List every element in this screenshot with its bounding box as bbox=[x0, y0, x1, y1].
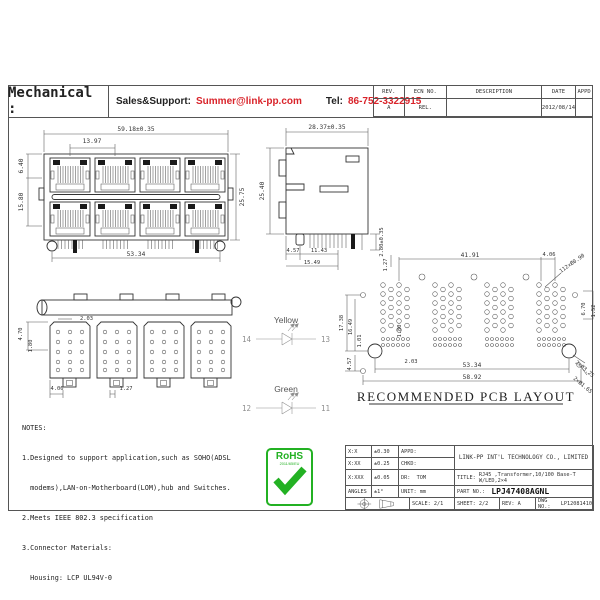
dim-pcb-left-mid: 16.49 bbox=[348, 319, 354, 335]
title-label: TITLE: bbox=[457, 475, 476, 481]
ecn-col-header: ECN NO. bbox=[405, 85, 447, 99]
dr-label: DR: bbox=[401, 475, 410, 481]
rev-label: REV: bbox=[502, 501, 515, 507]
rev-value: A bbox=[374, 99, 405, 117]
note-line: 3.Connector Materials: bbox=[22, 543, 263, 553]
dim-total-depth: 15.49 bbox=[304, 260, 320, 266]
dim-pcb-top-left: 1.27 bbox=[383, 259, 389, 272]
sales-support-label: Sales&Support: bbox=[116, 96, 191, 107]
title-value: RJ45 ,Transformer,10/100 Base-TW/LED,2×4 bbox=[479, 472, 576, 484]
projection-symbol-icon bbox=[350, 498, 406, 510]
tol-label: ANGLES bbox=[346, 486, 372, 498]
scale-label: SCALE: bbox=[412, 501, 431, 507]
part-no-label: PART NO.: bbox=[457, 489, 485, 495]
projection-symbol-cell bbox=[346, 498, 410, 510]
dim-pin-span: 11.43 bbox=[311, 248, 327, 254]
chkd-cell: CHKD: bbox=[399, 458, 455, 470]
pcb-hole-callout: 112×Ø0.90 bbox=[558, 252, 586, 274]
part-no-value: LPJ47408AGNL bbox=[491, 487, 549, 496]
unit-label: UNIT: bbox=[401, 489, 417, 495]
dim-top-offset: 6.40 bbox=[18, 158, 25, 173]
dim-pcb-span-inner: 53.34 bbox=[463, 362, 482, 369]
appd-cell: APPD: bbox=[399, 446, 455, 458]
notes-title: NOTES: bbox=[22, 423, 263, 433]
dim-pcb-top-span: 41.91 bbox=[461, 252, 480, 259]
dim-depth: 28.37±0.35 bbox=[308, 124, 346, 131]
side-view-drawing: 28.37±0.35 25.40 2.80±0.35 4.57 11.43 15… bbox=[248, 118, 388, 270]
unit-cell: UNIT: mm bbox=[399, 486, 455, 498]
rev-col-header: REV. bbox=[374, 85, 405, 99]
dr-cell: DR: TOM bbox=[399, 470, 455, 486]
dim-pcb-top-right: 4.06 bbox=[543, 252, 556, 258]
sheet-label: SHEET: bbox=[457, 501, 476, 507]
front-view-body bbox=[39, 154, 233, 253]
company-name: LINK-PP INT'L TECHNOLOGY CO., LIMITED bbox=[455, 446, 593, 470]
scale-cell: SCALE: 2/1 bbox=[410, 498, 455, 510]
sheet-value: 2/2 bbox=[479, 501, 488, 507]
chkd-label: CHKD: bbox=[401, 461, 417, 467]
rev-cell: REV: A bbox=[500, 498, 536, 510]
pcb-dimensions: 1.27 41.91 4.06 112×Ø0.90 17.38 16.49 1.… bbox=[339, 252, 597, 395]
side-view-dimensions: 28.37±0.35 25.40 2.80±0.35 4.57 11.43 15… bbox=[259, 124, 385, 270]
note-line: Housing: LCP UL94V-0 bbox=[22, 573, 263, 583]
rev-value: A bbox=[518, 501, 521, 507]
led-yellow-pin-left: 14 bbox=[242, 335, 252, 344]
description-value bbox=[447, 99, 542, 117]
dim-bottom-bottom-mid: 1.27 bbox=[120, 386, 133, 392]
note-line: modems),LAN-on-Motherboard(LOM),hub and … bbox=[22, 483, 263, 493]
tol-value: ±0.05 bbox=[372, 470, 399, 486]
bottom-view-body bbox=[37, 294, 241, 387]
led-symbol-yellow: Yellow 14 13 bbox=[240, 313, 332, 355]
title-cell: TITLE: RJ45 ,Transformer,10/100 Base-TW/… bbox=[455, 470, 593, 486]
dwg-label: DWG NO.: bbox=[538, 498, 558, 510]
note-line: 2.Meets IEEE 802.3 specification bbox=[22, 513, 263, 523]
dim-pcb-right-inner: 1.52 bbox=[591, 305, 597, 318]
sheet-cell: SHEET: 2/2 bbox=[455, 498, 500, 510]
support-email-link[interactable]: Summer@link-pp.com bbox=[196, 96, 302, 107]
led-yellow-label: Yellow bbox=[274, 315, 299, 325]
dim-side-height: 25.40 bbox=[259, 181, 266, 200]
front-view-drawing: 59.18±0.35 13.97 6.40 15.80 25.75 53.34 bbox=[14, 118, 246, 268]
rohs-badge: RoHS 2011/65/EU bbox=[266, 448, 313, 506]
revision-table: REV. ECN NO. DESCRIPTION DATE APPD A REL… bbox=[373, 85, 593, 117]
title-block: X:X ±0.30 X:XX ±0.25 X:XXX ±0.05 ANGLES … bbox=[345, 445, 594, 511]
note-line: 1.Designed to support application,such a… bbox=[22, 453, 263, 463]
tol-value: ±0.25 bbox=[372, 458, 399, 470]
dim-pcb-col-bottom: 2.03 bbox=[405, 359, 418, 365]
pcb-holes bbox=[361, 274, 594, 374]
mechanical-title: Mechanical : bbox=[8, 85, 109, 117]
appd-value bbox=[576, 99, 593, 117]
scale-value: 2/1 bbox=[434, 501, 443, 507]
rohs-title: RoHS bbox=[276, 451, 303, 462]
description-col-header: DESCRIPTION bbox=[447, 85, 542, 99]
dim-pcb-bottom-left: 4.57 bbox=[347, 358, 353, 371]
dim-row-offset: 15.80 bbox=[18, 192, 25, 211]
drawing-sheet: Mechanical : Sales&Support: Summer@link-… bbox=[0, 0, 600, 600]
led-yellow-pin-right: 13 bbox=[321, 335, 330, 344]
appd-col-header: APPD bbox=[576, 85, 593, 99]
dim-bottom-bottom-left: 4.06 bbox=[51, 386, 64, 392]
revision-header-row: REV. ECN NO. DESCRIPTION DATE APPD bbox=[374, 85, 593, 99]
dim-front-height: 25.75 bbox=[239, 187, 246, 206]
dim-pcb-right-outer: 6.70 bbox=[581, 303, 587, 316]
dim-bottom-left-outer: 4.70 bbox=[18, 328, 24, 341]
dim-pcb-span-outer: 58.92 bbox=[463, 374, 482, 381]
tol-value: ±1° bbox=[372, 486, 399, 498]
dr-value: TOM bbox=[417, 475, 426, 481]
rohs-checkmark-icon bbox=[273, 466, 307, 494]
dim-pcb-col-inner: 1.80 bbox=[397, 325, 403, 338]
dim-bottom-top: 2.03 bbox=[80, 316, 93, 322]
date-value: 2012/08/14 bbox=[542, 99, 577, 117]
tol-label: X:XX bbox=[346, 458, 372, 470]
unit-value: mm bbox=[420, 489, 426, 495]
tol-label: X:X bbox=[346, 446, 372, 458]
dim-pcb-left-outer: 17.38 bbox=[339, 315, 345, 331]
pcb-layout-drawing: 1.27 41.91 4.06 112×Ø0.90 17.38 16.49 1.… bbox=[333, 251, 599, 409]
part-no-cell: PART NO.: LPJ47408AGNL bbox=[455, 486, 593, 498]
led-green-pin-right: 11 bbox=[321, 404, 330, 413]
notes-block: NOTES: 1.Designed to support application… bbox=[22, 403, 263, 600]
pcb-layout-caption: RECOMMENDED PCB LAYOUT bbox=[357, 389, 575, 404]
appd-label: APPD: bbox=[401, 449, 417, 455]
ecn-value: REL. bbox=[405, 99, 447, 117]
tel-label: Tel: bbox=[326, 96, 343, 107]
side-view-body bbox=[279, 148, 368, 250]
dwg-cell: DWG NO.: LP12081410 bbox=[536, 498, 593, 510]
bottom-view-drawing: 2.03 4.70 1.80 4.06 1.27 bbox=[14, 288, 254, 408]
date-col-header: DATE bbox=[542, 85, 577, 99]
front-view-dimensions: 59.18±0.35 13.97 6.40 15.80 25.75 53.34 bbox=[18, 126, 246, 262]
dim-overall-width: 59.18±0.35 bbox=[117, 126, 155, 133]
dim-front-bottom-width: 53.34 bbox=[127, 251, 146, 258]
dim-port-pitch: 13.97 bbox=[83, 138, 102, 145]
dim-pcb-left-inner: 1.01 bbox=[357, 335, 363, 348]
dim-bottom-left-inner: 1.80 bbox=[28, 340, 34, 353]
revision-data-row: A REL. 2012/08/14 bbox=[374, 99, 593, 117]
tol-label: X:XXX bbox=[346, 470, 372, 486]
dim-pin-offset: 4.57 bbox=[287, 248, 300, 254]
dwg-value: LP12081410 bbox=[561, 501, 592, 507]
tol-value: ±0.30 bbox=[372, 446, 399, 458]
